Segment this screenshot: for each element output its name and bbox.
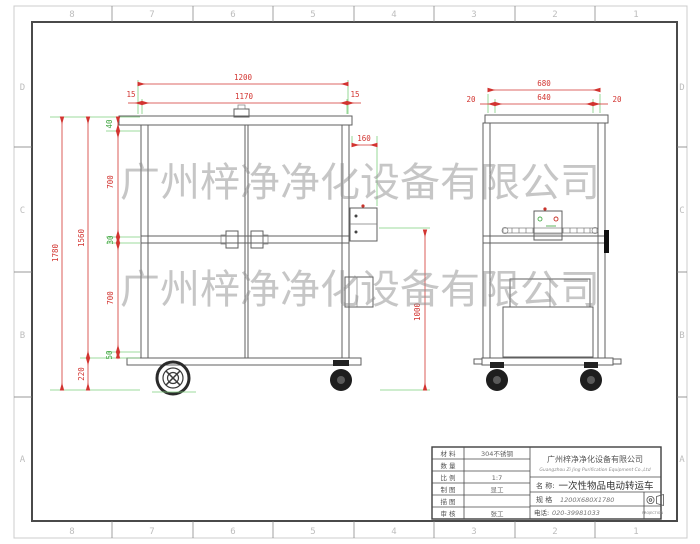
front-view (119, 105, 377, 394)
watermark-line-2: 广州梓净净化设备有限公司 (120, 267, 600, 313)
front-drive-wheel (157, 362, 189, 394)
side-handle-grip (604, 230, 609, 253)
side-caster-left (486, 362, 508, 391)
side-lid (485, 115, 608, 123)
side-view-dimensions: 680 640 20 20 (466, 79, 622, 113)
zone-right-a: A (679, 455, 685, 465)
red-indicator (554, 217, 558, 221)
dim-depth-wall-right: 20 (612, 95, 622, 104)
dim-inner-depth: 640 (537, 93, 551, 102)
zone-bottom-7: 7 (149, 527, 154, 537)
zone-bottom-8: 8 (69, 527, 74, 537)
side-caster-right (580, 362, 602, 391)
tb-phone-value: 020-39981033 (552, 509, 600, 517)
dim-overall-depth: 680 (537, 79, 551, 88)
tb-row-label-material: 材 料 (440, 449, 456, 458)
tb-company-cn: 广州梓净净化设备有限公司 (547, 454, 643, 464)
dim-handle-offset: 160 (357, 134, 371, 143)
zone-top-5: 5 (310, 10, 315, 20)
tb-row-label-scale: 比 例 (440, 473, 455, 482)
side-right-wall (598, 123, 605, 358)
side-roller-rod (502, 228, 598, 234)
watermark-line-1: 广州梓净净化设备有限公司 (120, 160, 600, 206)
side-left-wall (483, 123, 490, 358)
zone-left-c: C (20, 206, 25, 216)
tb-row-value-scale: 1:7 (492, 474, 502, 482)
drawing-canvas: 8 7 6 5 4 3 2 1 8 7 6 5 4 3 2 1 D C B A … (0, 0, 700, 544)
tb-row-label-quantity: 数 量 (440, 461, 456, 470)
dim-bottom-rail: 50 (105, 350, 114, 360)
zone-top-8: 8 (69, 10, 74, 20)
tb-name-value: 一次性物品电动转运车 (558, 480, 653, 492)
front-control-box (350, 204, 377, 241)
zone-left-a: A (20, 455, 26, 465)
tb-row-value-checked: 张工 (491, 509, 505, 518)
front-caster-wheel (330, 360, 352, 391)
dim-wall-left: 15 (126, 90, 135, 99)
tb-spec-value: 1200X680X1780 (560, 496, 614, 504)
tb-projection-label: PROJECTION (642, 511, 663, 515)
zone-right-b: B (679, 331, 684, 341)
tb-row-value-drawn: 显工 (491, 486, 505, 494)
tb-row-label-drawn: 制 图 (440, 485, 455, 494)
power-button-dot (543, 207, 546, 210)
front-lid-latch-pin (238, 105, 245, 109)
tb-name-label: 名 称: (536, 481, 555, 490)
tb-spec-label: 规 格 (536, 495, 552, 504)
dim-depth-wall-left: 20 (466, 95, 476, 104)
zone-right-d: D (679, 83, 684, 93)
side-control-panel (534, 207, 562, 240)
tb-row-label-checked: 审 核 (440, 509, 456, 518)
zone-right-c: C (679, 206, 684, 216)
dim-upper-section: 700 (106, 175, 115, 189)
zone-top-2: 2 (552, 10, 557, 20)
dim-overall-width: 1200 (234, 73, 253, 82)
tb-phone-label: 电话: (534, 508, 549, 517)
title-block: 材 料 304不锈钢 数 量 比 例 1:7 制 图 显工 描 图 审 核 张工… (432, 447, 664, 519)
dim-lid: 40 (105, 119, 114, 129)
dim-inner-width: 1170 (235, 92, 254, 101)
zone-top-1: 1 (633, 10, 638, 20)
dim-body-height: 1560 (77, 228, 86, 247)
dim-wheel-height: 220 (77, 367, 86, 381)
green-indicator (538, 217, 542, 221)
tb-row-label-traced: 描 图 (440, 497, 455, 506)
zone-bottom-3: 3 (471, 527, 476, 537)
zone-top-3: 3 (471, 10, 476, 20)
zone-bottom-2: 2 (552, 527, 557, 537)
side-view (474, 115, 621, 391)
tb-company-en: Guangzhou Zi Jing Purification Equipment… (539, 467, 650, 473)
dim-overall-height: 1780 (51, 243, 60, 262)
zone-bottom-4: 4 (391, 527, 396, 537)
zone-top-7: 7 (149, 10, 154, 20)
dim-lower-section: 700 (106, 291, 115, 305)
zone-top-6: 6 (230, 10, 235, 20)
dim-wall-right: 15 (350, 90, 359, 99)
zone-left-d: D (20, 83, 25, 93)
zone-bottom-1: 1 (633, 527, 638, 537)
cad-drawing-sheet: 8 7 6 5 4 3 2 1 8 7 6 5 4 3 2 1 D C B A … (0, 0, 700, 544)
zone-bottom-5: 5 (310, 527, 315, 537)
zone-left-b: B (20, 331, 25, 341)
front-bottom-rail (127, 358, 361, 365)
side-battery-box (503, 307, 593, 357)
zone-top-4: 4 (391, 10, 396, 20)
dim-mid-rail: 30 (106, 235, 115, 245)
front-view-dimensions: 1200 1170 15 15 160 40 700 30 700 50 156… (50, 73, 430, 392)
tb-row-value-material: 304不锈钢 (481, 449, 513, 458)
zone-bottom-6: 6 (230, 527, 235, 537)
